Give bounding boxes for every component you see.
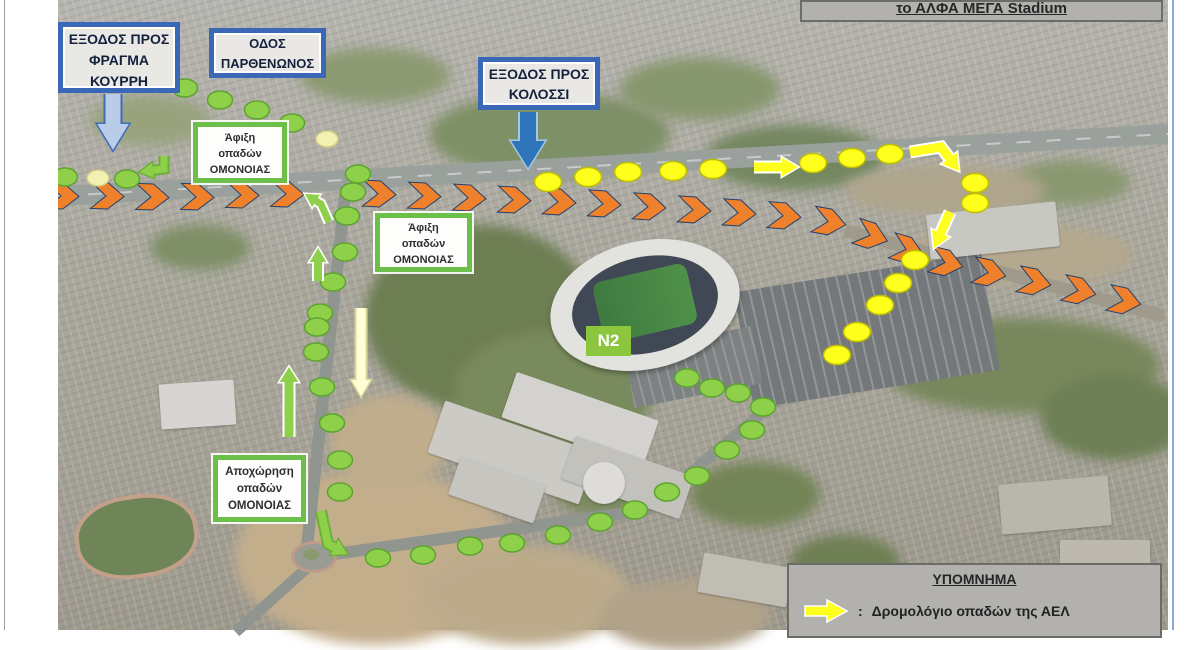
aerial-photo [0, 0, 1200, 630]
sign-line: ΚΟΛΟΣΣΙ [483, 84, 595, 104]
sign-omonoia-departure: Αποχώρηση οπαδών ΟΜΟΝΟΙΑΣ [213, 455, 306, 522]
vegetation-patch [90, 95, 210, 145]
roundabout-island [303, 549, 319, 560]
sign-line: ΚΟΥΡΡΗ [63, 71, 175, 92]
sign-line: ΟΔΟΣ [214, 34, 321, 54]
sign-line: οπαδών [380, 236, 467, 252]
sports-hall-building [159, 379, 237, 429]
vegetation-patch [690, 462, 820, 527]
sign-line: ΕΞΟΔΟΣ ΠΡΟΣ [483, 64, 595, 84]
vegetation-patch [150, 225, 250, 270]
page-left-border-line [4, 0, 5, 630]
sign-exit-kolossi: ΕΞΟΔΟΣ ΠΡΟΣ ΚΟΛΟΣΣΙ [478, 57, 600, 110]
sign-line: ΠΑΡΘΕΝΩΝΟΣ [214, 54, 321, 74]
stadium-title-box: το ΑΛΦΑ ΜΕΓΑ Stadium [800, 0, 1163, 22]
sign-omonoia-arrival-2: Άφιξη οπαδών ΟΜΟΝΟΙΑΣ [375, 213, 472, 272]
legend-item-label: Δρομολόγιο οπαδών της ΑΕΛ [872, 603, 1070, 619]
bare-ground-patch [420, 545, 630, 645]
stadium-title-text: το ΑΛΦΑ ΜΕΓΑ Stadium [802, 0, 1161, 20]
sign-line: Αποχώρηση [218, 464, 301, 481]
ael-route-arrow-icon [803, 598, 849, 624]
sign-line: ΕΞΟΔΟΣ ΠΡΟΣ [63, 29, 175, 50]
sign-line: ΟΜΟΝΟΙΑΣ [380, 252, 467, 268]
vegetation-patch [620, 58, 780, 120]
page-left-margin [0, 0, 58, 630]
sign-line: Άφιξη [380, 220, 467, 236]
legend-title: ΥΠΟΜΝΗΜΑ [789, 571, 1160, 587]
legend-item: : Δρομολόγιο οπαδών της ΑΕΛ [803, 598, 1160, 624]
sign-parthenonos-street: ΟΔΟΣ ΠΑΡΘΕΝΩΝΟΣ [209, 28, 326, 78]
sign-line: οπαδών [218, 481, 301, 498]
village-building [998, 475, 1112, 534]
page-right-border-line [1172, 0, 1174, 630]
sign-exit-kourris-dam: ΕΞΟΔΟΣ ΠΡΟΣ ΦΡΑΓΜΑ ΚΟΥΡΡΗ [58, 22, 180, 93]
sign-line: Άφιξη [198, 130, 282, 146]
sign-line: ΟΜΟΝΟΙΑΣ [218, 498, 301, 515]
gate-n2-label: N2 [586, 326, 631, 356]
sign-line: ΟΜΟΝΟΙΑΣ [198, 162, 282, 178]
sign-line: οπαδών [198, 146, 282, 162]
campus-dome [583, 462, 625, 504]
legend-box: ΥΠΟΜΝΗΜΑ : Δρομολόγιο οπαδών της ΑΕΛ [787, 563, 1162, 638]
sign-omonoia-arrival-1: Άφιξη οπαδών ΟΜΟΝΟΙΑΣ [193, 122, 287, 183]
legend-separator: : [858, 603, 863, 619]
sign-line: ΦΡΑΓΜΑ [63, 50, 175, 71]
